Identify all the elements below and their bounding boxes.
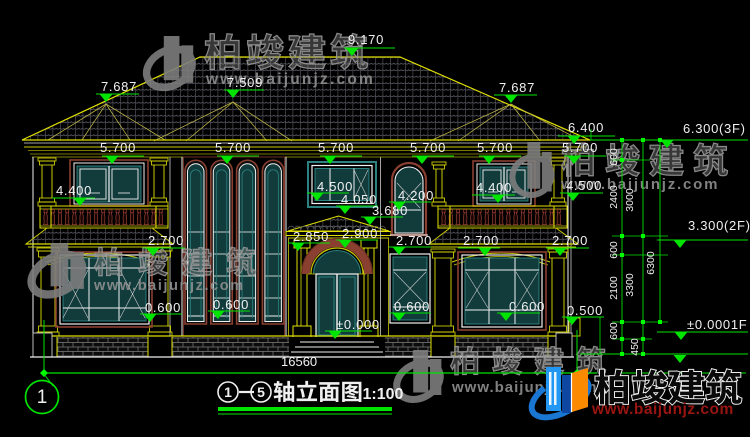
svg-text:0.600: 0.600 — [213, 297, 249, 312]
svg-text:5: 5 — [257, 384, 265, 400]
svg-text:2.850: 2.850 — [293, 229, 329, 244]
svg-text:7.687: 7.687 — [499, 80, 535, 95]
svg-text:6300: 6300 — [645, 251, 657, 275]
svg-text:3300: 3300 — [624, 273, 636, 297]
svg-text:5.700: 5.700 — [215, 140, 251, 155]
svg-text:2.700: 2.700 — [463, 233, 499, 248]
svg-text:5.700: 5.700 — [410, 140, 446, 155]
svg-text:www.baijunjz.com: www.baijunjz.com — [93, 278, 245, 294]
svg-text:2400: 2400 — [608, 185, 620, 209]
svg-text:0.600: 0.600 — [145, 300, 181, 315]
svg-text:2.900: 2.900 — [342, 226, 378, 241]
svg-text:6.400: 6.400 — [568, 120, 604, 135]
svg-text:5.700: 5.700 — [562, 140, 598, 155]
svg-text:9.170: 9.170 — [348, 32, 384, 47]
svg-text:600: 600 — [608, 148, 620, 166]
svg-text:0.600: 0.600 — [509, 299, 545, 314]
svg-text:600: 600 — [608, 322, 620, 340]
svg-text:3.300(2F): 3.300(2F) — [688, 218, 750, 233]
svg-text:5.700: 5.700 — [318, 140, 354, 155]
svg-text:www.baijunjz.com: www.baijunjz.com — [591, 401, 734, 418]
svg-text:1: 1 — [224, 384, 232, 400]
svg-text:16560: 16560 — [281, 354, 317, 369]
svg-text:5.700: 5.700 — [477, 140, 513, 155]
svg-text:±0.0001F: ±0.0001F — [687, 317, 747, 332]
svg-text:4.400: 4.400 — [56, 183, 92, 198]
svg-text:450: 450 — [629, 338, 641, 356]
svg-text:3000: 3000 — [624, 188, 636, 212]
svg-text:7.687: 7.687 — [101, 79, 137, 94]
svg-text:7.509: 7.509 — [227, 75, 263, 90]
svg-text:4.400: 4.400 — [476, 180, 512, 195]
svg-text:600: 600 — [608, 241, 620, 259]
svg-text:1: 1 — [37, 387, 48, 408]
svg-text:2100: 2100 — [608, 276, 620, 300]
svg-text:2.700: 2.700 — [552, 233, 588, 248]
svg-text:4.200: 4.200 — [398, 188, 434, 203]
svg-text:5.700: 5.700 — [100, 140, 136, 155]
svg-text:0.600: 0.600 — [394, 299, 430, 314]
svg-text:6.300(3F): 6.300(3F) — [683, 121, 746, 136]
svg-text:0.500: 0.500 — [567, 303, 603, 318]
svg-text:±0.000: ±0.000 — [336, 317, 380, 332]
svg-text:4.500: 4.500 — [566, 178, 602, 193]
svg-text:2.700: 2.700 — [396, 233, 432, 248]
svg-text:2.700: 2.700 — [148, 233, 184, 248]
svg-text:1:100: 1:100 — [363, 386, 404, 403]
